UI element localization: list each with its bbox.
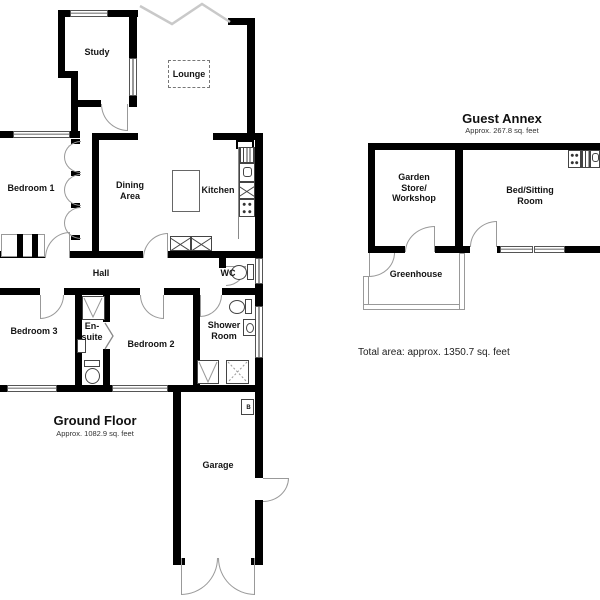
- room-label-bedroom1: Bedroom 1: [2, 183, 60, 194]
- airing-cupboard: [226, 360, 249, 384]
- wall: [455, 143, 463, 253]
- room-label-greenhouse: Greenhouse: [386, 269, 446, 280]
- wall: [164, 288, 200, 295]
- guest-annex-title: Guest Annex: [442, 112, 562, 126]
- door-arc: [101, 104, 128, 131]
- wardrobe-door-arc: [64, 190, 81, 206]
- room-label-study: Study: [72, 47, 122, 58]
- door-arc: [200, 295, 222, 317]
- room-label-dining: Dining Area: [112, 180, 148, 201]
- wardrobe-door-arc: [64, 207, 81, 223]
- garage-door-arc: [218, 558, 255, 595]
- window: [13, 131, 70, 138]
- wall: [92, 133, 138, 140]
- toilet: [229, 300, 245, 314]
- toilet: [85, 368, 100, 384]
- window: [129, 58, 137, 96]
- wall: [213, 133, 263, 140]
- wall: [173, 392, 181, 565]
- wardrobe-door-arc: [64, 157, 81, 173]
- kitchenette-sink-bowl: [592, 153, 599, 162]
- boiler-label: B: [242, 400, 255, 416]
- kitchen-sink-bowl: [243, 167, 252, 177]
- wall: [64, 288, 140, 295]
- break-line: [140, 4, 230, 24]
- window: [112, 385, 168, 392]
- wall: [368, 143, 600, 150]
- window: [255, 258, 263, 284]
- shower-tray: [82, 296, 105, 320]
- toilet-cistern: [245, 299, 252, 314]
- window: [500, 246, 533, 253]
- kitchenette-drainer: [581, 150, 590, 168]
- wall: [565, 246, 600, 253]
- kitchen-drainer: [239, 147, 255, 163]
- door-arc: [405, 226, 435, 252]
- wall: [255, 140, 263, 253]
- floor-plan: B Study Lounge Bedroom 1 Dining Area Kit…: [0, 0, 600, 600]
- ground-floor-title: Ground Floor: [45, 414, 145, 428]
- cupboard: [1, 234, 45, 257]
- wall: [435, 246, 470, 253]
- greenhouse-wall: [363, 304, 465, 310]
- total-area-text: Total area: approx. 1350.7 sq. feet: [358, 347, 510, 358]
- door-arc: [470, 221, 497, 247]
- ground-floor-area: Approx. 1082.9 sq. feet: [45, 429, 145, 438]
- window: [70, 10, 108, 17]
- window: [534, 246, 565, 253]
- garage-door-arc: [181, 558, 218, 595]
- wall: [70, 251, 143, 258]
- greenhouse-wall: [459, 253, 465, 310]
- wall: [58, 10, 65, 78]
- wardrobe-door-arc: [64, 174, 81, 190]
- boiler-box: B: [241, 399, 254, 415]
- wall: [255, 392, 263, 478]
- kitchen-unit: [191, 236, 212, 251]
- room-label-lounge: Lounge: [168, 69, 210, 80]
- room-label-wc: WC: [215, 268, 241, 279]
- door-arc: [263, 478, 289, 502]
- wall: [71, 100, 101, 107]
- room-label-shower: Shower Room: [200, 320, 248, 341]
- shower-cubicle: [197, 360, 219, 384]
- room-label-hall: Hall: [86, 268, 116, 279]
- door-arc: [40, 295, 64, 319]
- door-arc: [45, 232, 70, 258]
- cupboard-partition: [17, 234, 23, 258]
- room-label-bed-sitting: Bed/Sitting Room: [498, 185, 562, 206]
- room-label-garden-store: Garden Store/ Workshop: [389, 172, 439, 204]
- wall: [368, 143, 375, 253]
- wall: [368, 246, 405, 253]
- toilet-cistern: [84, 360, 100, 367]
- wall: [168, 251, 263, 258]
- wall: [255, 500, 263, 565]
- room-label-garage: Garage: [193, 460, 243, 471]
- wall: [228, 18, 255, 25]
- kitchen-hob: [239, 199, 255, 217]
- room-label-bedroom3: Bedroom 3: [5, 326, 63, 337]
- wall: [247, 18, 255, 140]
- guest-annex-area: Approx. 267.8 sq. feet: [442, 126, 562, 135]
- wall: [92, 140, 99, 258]
- wardrobe-door-arc: [64, 141, 81, 157]
- room-label-kitchen: Kitchen: [192, 185, 244, 196]
- room-label-bedroom2: Bedroom 2: [122, 339, 180, 350]
- door-arc: [140, 295, 164, 319]
- kitchenette-hob: [568, 150, 581, 168]
- window: [7, 385, 57, 392]
- cupboard-partition: [32, 234, 38, 258]
- wall: [0, 288, 40, 295]
- wall: [219, 258, 226, 268]
- kitchen-unit: [170, 236, 191, 251]
- window: [255, 306, 263, 358]
- room-label-ensuite: En-suite: [76, 321, 108, 342]
- toilet-cistern: [247, 264, 254, 280]
- door-arc: [143, 233, 168, 258]
